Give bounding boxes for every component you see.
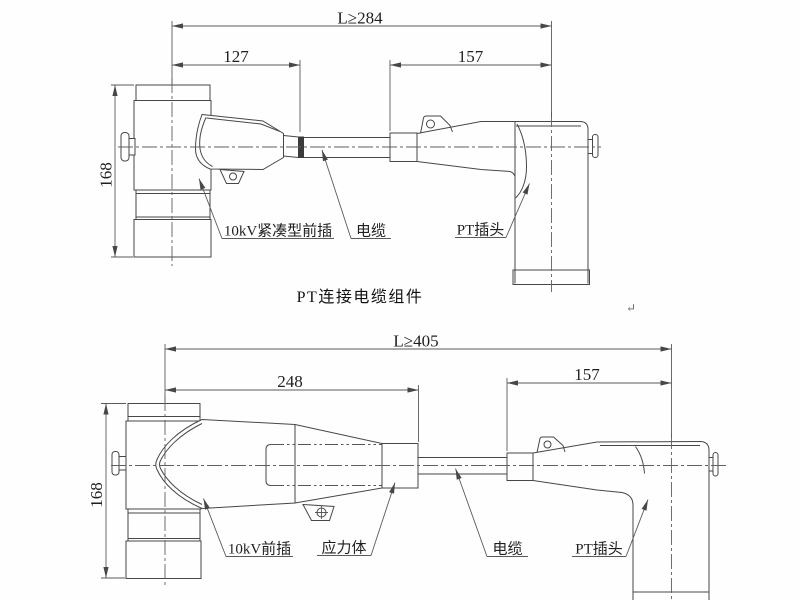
bottom-pt-collar (507, 453, 533, 481)
label-top-pt-plug: PT插头 (457, 222, 505, 239)
top-cable (304, 138, 390, 158)
label-bottom-pt-plug: PT插头 (575, 541, 623, 558)
dim-top-height: 168 (97, 162, 116, 188)
label-top-cable: 电缆 (356, 223, 386, 240)
top-pt-eyelet-tab (421, 116, 453, 134)
label-bottom-front-plug: 10kV前插 (228, 541, 291, 558)
dim-bottom-overall: L≥405 (393, 332, 438, 351)
dim-bottom-left: 248 (277, 372, 303, 391)
drawing-canvas: L≥284 127 157 168 10kV紧凑型前插 电缆 PT插头 PT连接… (0, 0, 800, 600)
dim-top-right: 157 (458, 47, 484, 66)
dim-bottom-right: 157 (574, 365, 600, 384)
label-bottom-cable: 电缆 (492, 541, 522, 558)
label-top-front-plug: 10kV紧凑型前插 (224, 223, 332, 240)
bottom-drawing (112, 404, 718, 600)
dim-top-left: 127 (223, 47, 249, 66)
top-pt-plug (390, 116, 598, 285)
top-right-test-point-knob (588, 135, 598, 158)
dim-top-overall: L≥284 (337, 9, 383, 28)
bottom-right-test-point-knob (709, 453, 718, 477)
bottom-pt-plug (507, 437, 718, 600)
bottom-front-plug-bell (156, 420, 295, 509)
top-bracket-lug (220, 170, 244, 184)
bottom-left-test-point-knob (112, 452, 126, 476)
cad-drawing-sheet: L≥284 127 157 168 10kV紧凑型前插 电缆 PT插头 PT连接… (0, 0, 800, 600)
top-front-plug-cone (196, 115, 305, 170)
paragraph-return-mark: ↵ (626, 301, 636, 315)
label-bottom-stress-body: 应力体 (321, 539, 366, 557)
bottom-bracket-lug (303, 505, 334, 521)
bottom-front-plug-cone (295, 425, 418, 504)
top-drawing (121, 85, 598, 285)
drawing-title: PT连接电缆组件 (297, 288, 424, 306)
dim-bottom-height: 168 (87, 482, 106, 508)
